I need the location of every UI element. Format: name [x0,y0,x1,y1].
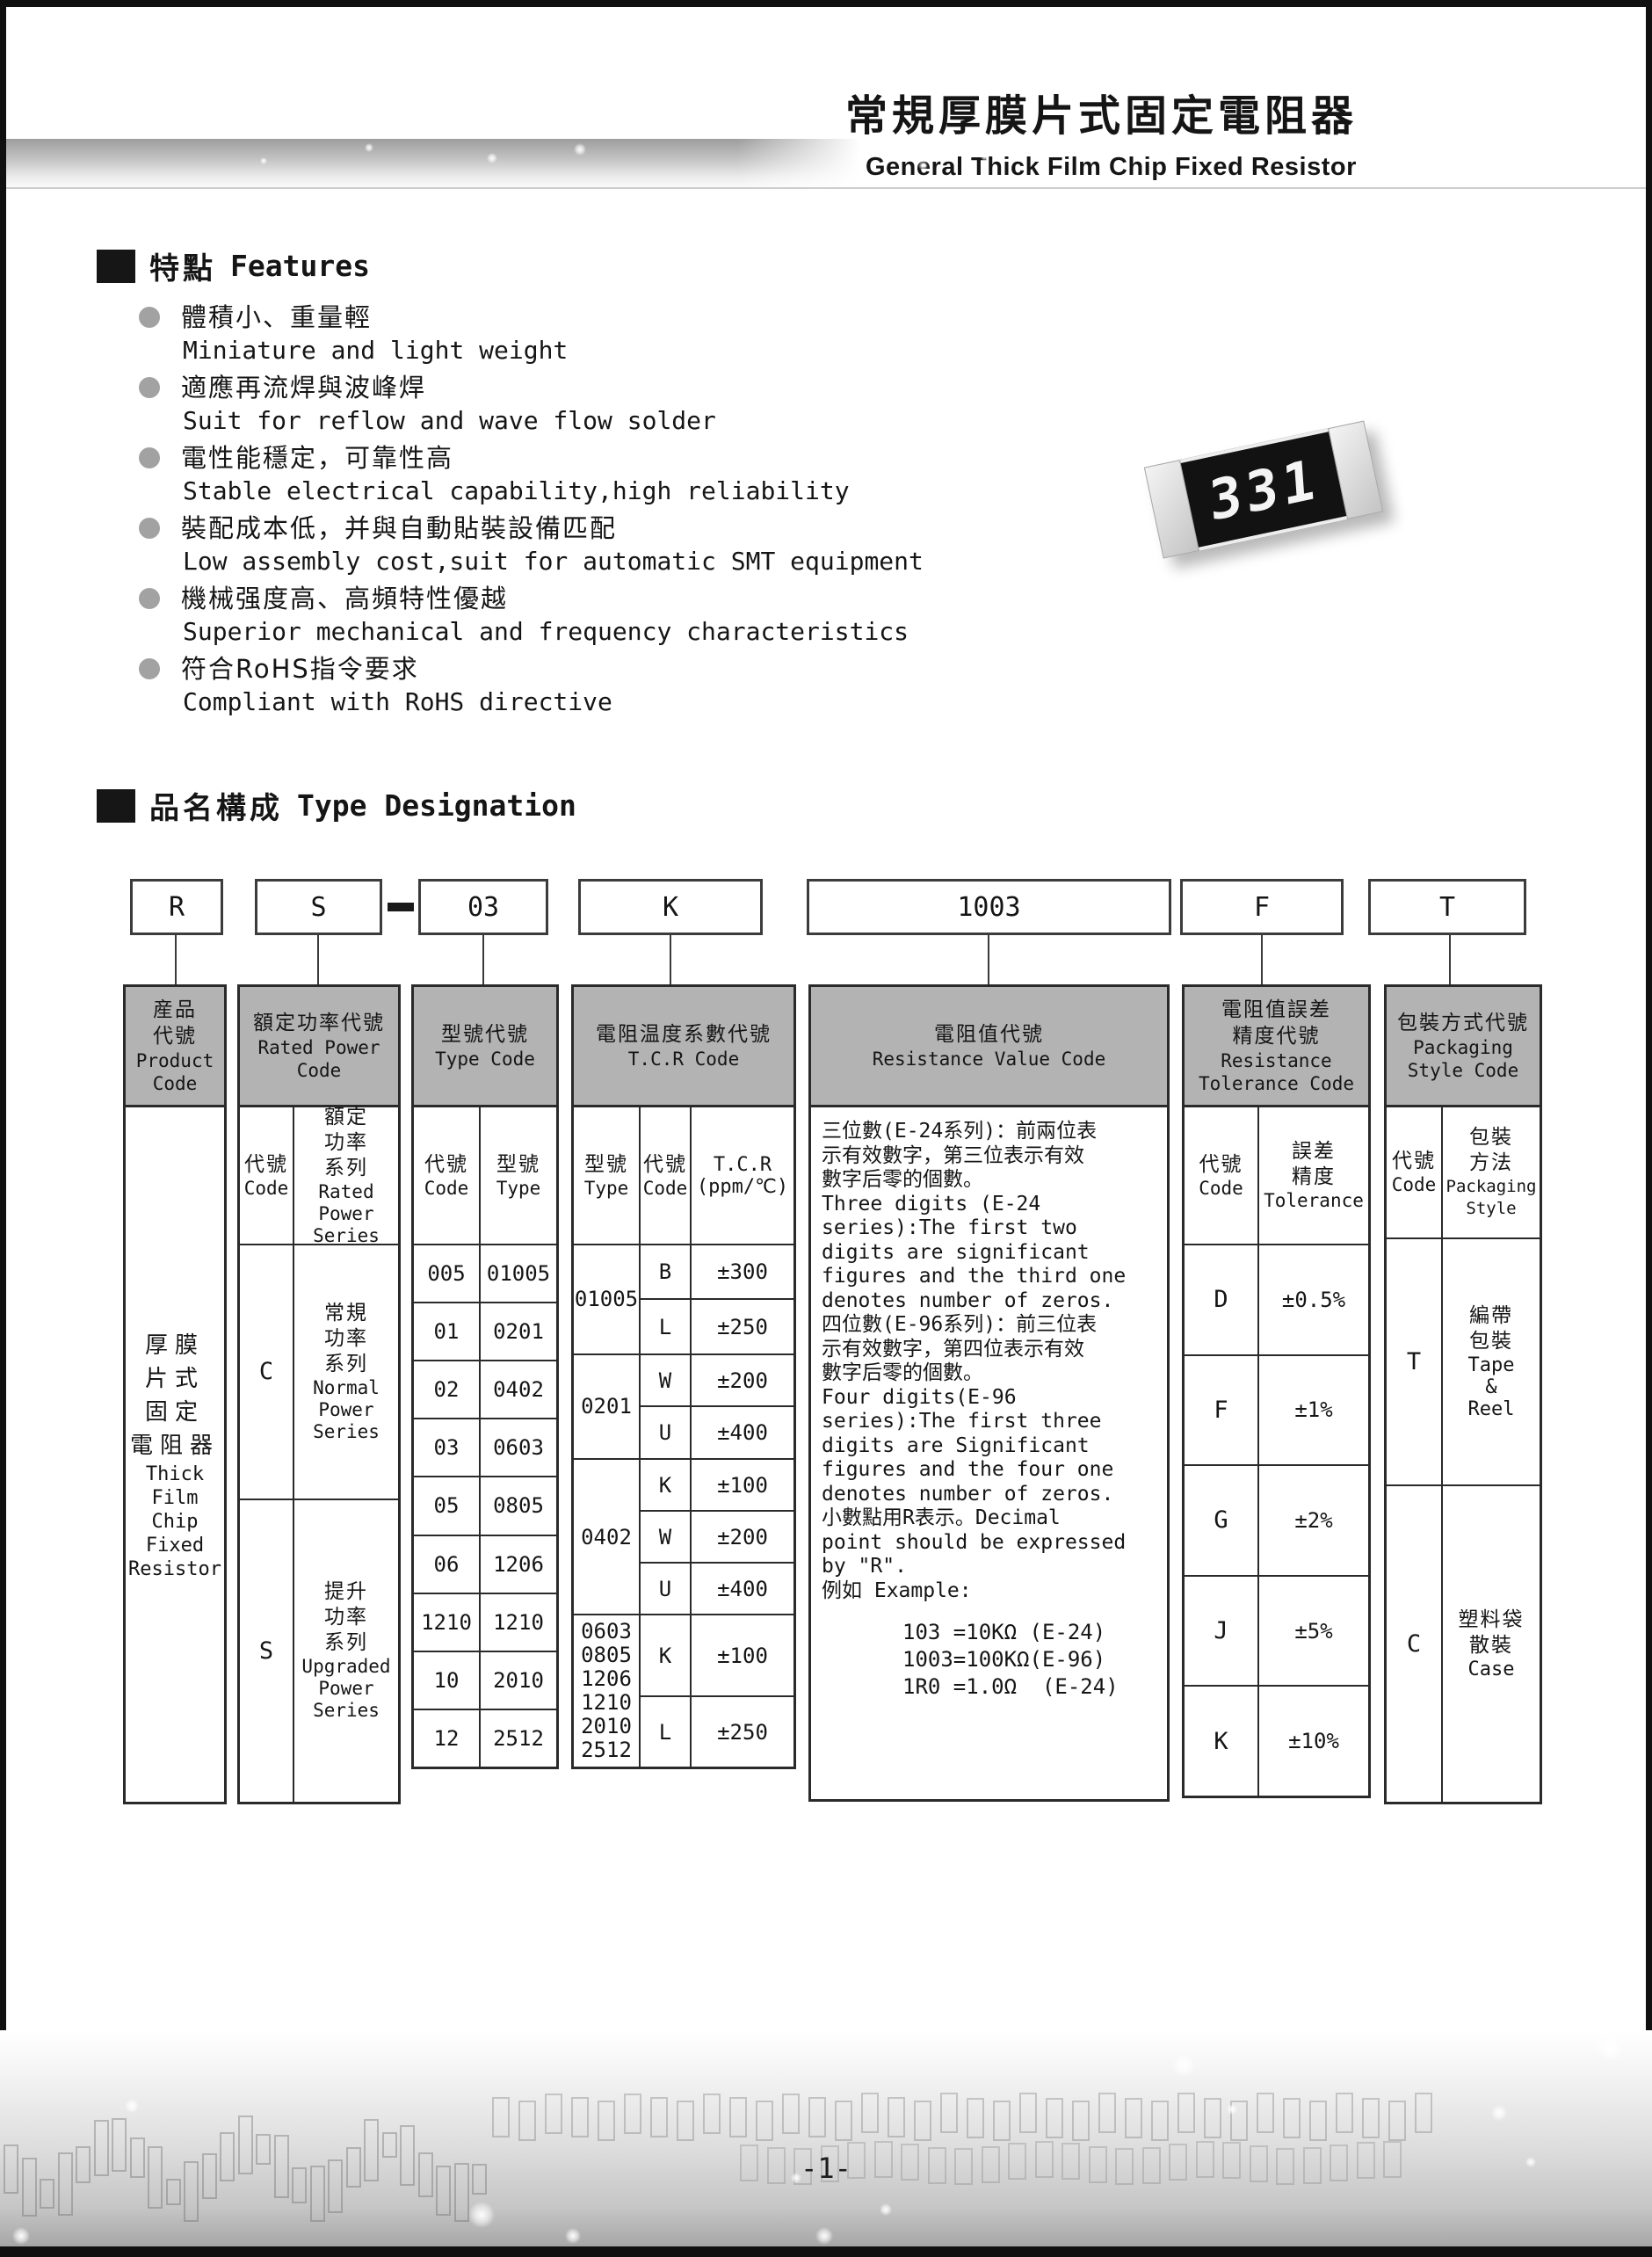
connector-line [175,935,177,985]
page-border-right [1646,0,1652,2257]
code-box-tcr: K [578,879,763,935]
tolerance-row: G ±2% [1185,1466,1368,1577]
header-rule [6,187,1646,189]
rated-power-row: C 常規 功率 系列 Normal Power Series [240,1245,398,1500]
rated-power-column: 代號 Code 額定 功率 系列 Rated Power Series C 常規… [237,1105,401,1804]
feature-item: 符合RoHS指令要求 Compliant with RoHS directive [139,652,1105,719]
chip-body: 331 [1144,421,1383,559]
packaging-row: T 編帶 包裝 Tape & Reel [1387,1239,1540,1486]
rated-power-row: S 提升 功率 系列 Upgraded Power Series [240,1500,398,1802]
tolerance-column: 代號 Code 誤差 精度 Tolerance D ±0.5% F ±1% G … [1182,1105,1371,1798]
connector-line [482,935,484,985]
tolerance-row: K ±10% [1185,1687,1368,1796]
packaging-row: C 塑料袋 散裝 Case [1387,1486,1540,1802]
resistor-photo: 331 [1135,397,1425,599]
bullet-icon [139,588,160,609]
code-box-power: S [255,879,382,935]
type-code-row: 02 0402 [414,1361,556,1419]
col-header-type-code: 型號代號 Type Code [411,984,559,1107]
type-code-row: 005 01005 [414,1245,556,1303]
bullet-icon [139,377,160,398]
type-code-row: 05 0805 [414,1477,556,1535]
code-box-packaging: T [1368,879,1526,935]
page-border-left [0,0,6,2257]
type-code-column: 代號 Code 型號 Type 005 01005 01 0201 02 040… [411,1105,559,1769]
col-header-rated-power: 額定功率代號 Rated Power Code [237,984,401,1107]
tcr-group: 01005 B ±300 L ±250 [574,1245,793,1355]
connector-line [1449,935,1451,985]
page-title-zh: 常規厚膜片式固定電阻器 [845,81,1358,142]
features-list: 體積小、重量輕 Miniature and light weight 適應再流焊… [139,301,1105,722]
resistance-value-column: 三位數(E-24系列)：前兩位表 示有效數字，第三位表示有效 數字后零的個數。 … [808,1105,1170,1802]
connector-line [670,935,671,985]
type-code-row: 01 0201 [414,1303,556,1361]
bullet-icon [139,447,160,468]
packaging-column: 代號 Code 包裝 方法 Packaging Style T 編帶 包裝 Ta… [1384,1105,1542,1804]
tcr-group: 0201 W ±200 U ±400 [574,1355,793,1460]
chip-marking: 331 [1206,446,1320,533]
features-heading-en: Features [230,249,370,283]
connector-line [1261,935,1263,985]
connector-line [317,935,319,985]
bullet-icon [139,658,160,679]
code-box-product: R [130,879,223,935]
tcr-group: 0603 0805 1206 1210 2010 2512 K ±100 L ±… [574,1615,793,1767]
tolerance-row: J ±5% [1185,1577,1368,1687]
designation-heading-en: Type Designation [297,788,576,823]
page-border-bottom [0,2246,1652,2257]
bullet-icon [139,307,160,328]
page-title-en: General Thick Film Chip Fixed Resistor [866,153,1357,182]
section-square-icon [97,789,135,823]
col-header-packaging: 包裝方式代號 Packaging Style Code [1384,984,1542,1107]
dash-separator [388,903,414,911]
features-heading-zh: 特點 [149,244,216,287]
type-code-row: 06 1206 [414,1536,556,1594]
type-designation-heading: 品名構成 Type Designation [97,784,576,827]
type-code-row: 1210 1210 [414,1594,556,1652]
feature-item: 體積小、重量輕 Miniature and light weight [139,301,1105,367]
tolerance-row: D ±0.5% [1185,1245,1368,1356]
type-code-row: 12 2512 [414,1710,556,1767]
col-header-resistance: 電阻值代號 Resistance Value Code [808,984,1170,1107]
type-code-row: 10 2010 [414,1652,556,1710]
feature-item: 裝配成本低，并與自動貼裝設備匹配 Low assembly cost,suit … [139,512,1105,578]
tcr-column: 型號 Type 代號 Code T.C.R (ppm/℃) 01005 B ±3… [571,1105,796,1769]
product-column: 厚膜 片式 固定 電阻器 Thick Film Chip Fixed Resis… [123,1105,227,1804]
features-heading: 特點 Features [97,244,370,287]
feature-item: 適應再流焊與波峰焊 Suit for reflow and wave flow … [139,371,1105,438]
tcr-group: 0402 K ±100 W ±200 U ±400 [574,1460,793,1616]
designation-heading-zh: 品名構成 [149,784,283,827]
bullet-icon [139,518,160,539]
page-border-top [0,0,1652,7]
datasheet-page: 常規厚膜片式固定電阻器 General Thick Film Chip Fixe… [0,0,1652,2257]
connector-line [988,935,989,985]
page-number: -1- [0,2152,1652,2185]
col-header-product: 産品 代號 Product Code [123,984,227,1107]
header-gradient-band [6,139,860,188]
code-box-type: 03 [418,879,548,935]
code-box-resistance: 1003 [807,879,1171,935]
tolerance-row: F ±1% [1185,1356,1368,1467]
col-header-tolerance: 電阻值誤差 精度代號 Resistance Tolerance Code [1182,984,1371,1107]
feature-item: 電性能穩定，可靠性高 Stable electrical capability,… [139,441,1105,508]
feature-item: 機械强度高、高頻特性優越 Superior mechanical and fre… [139,582,1105,649]
code-box-tolerance: F [1180,879,1344,935]
section-square-icon [97,250,135,283]
type-code-row: 03 0603 [414,1419,556,1477]
col-header-tcr: 電阻温度系數代號 T.C.R Code [571,984,796,1107]
